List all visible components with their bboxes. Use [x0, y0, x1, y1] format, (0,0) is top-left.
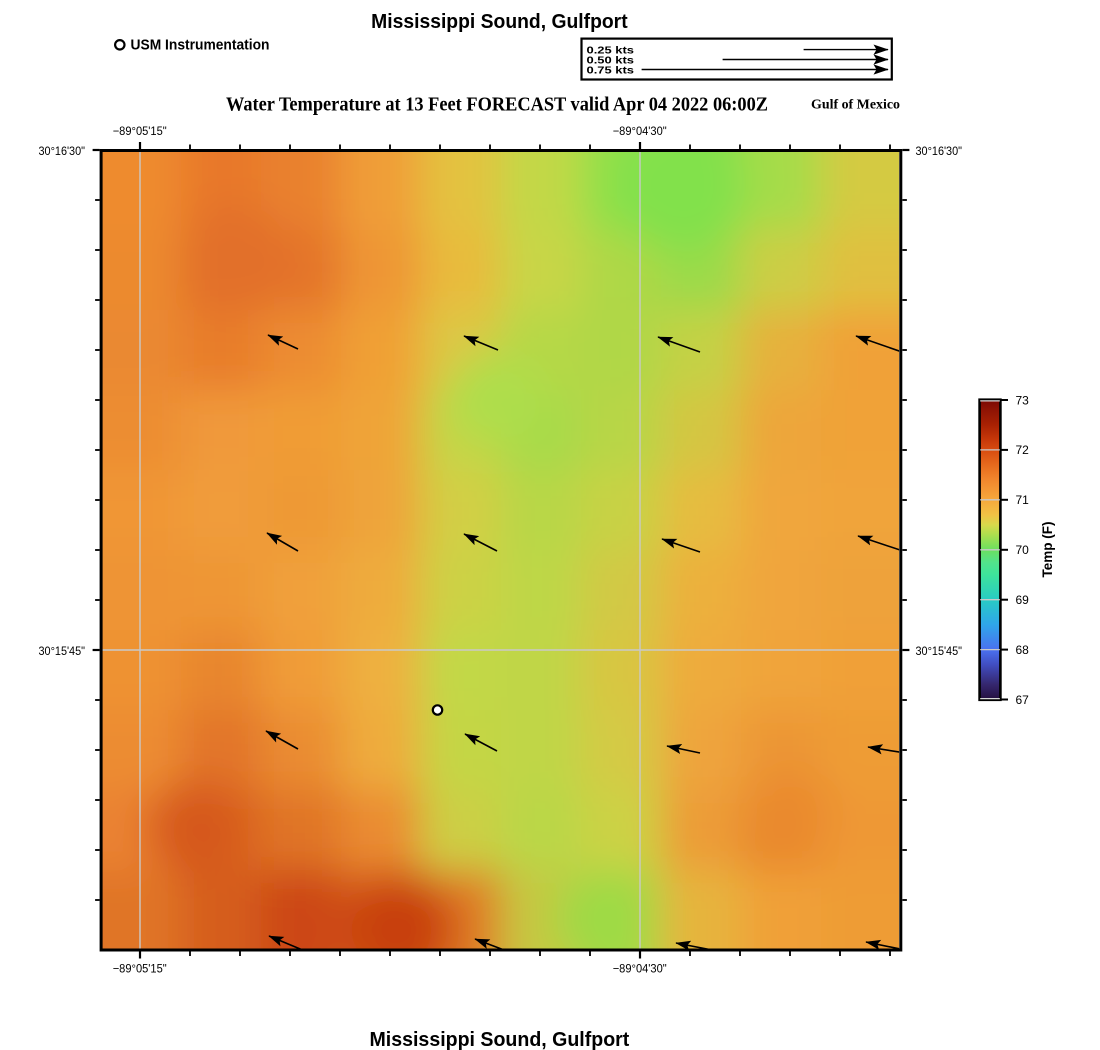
svg-text:30°15'45": 30°15'45": [916, 644, 963, 658]
svg-text:−89°04'30": −89°04'30": [613, 961, 667, 975]
svg-text:Gulf of Mexico: Gulf of Mexico: [811, 97, 900, 112]
svg-text:0.75 kts: 0.75 kts: [587, 64, 635, 76]
svg-text:71: 71: [1016, 493, 1030, 507]
svg-text:68: 68: [1016, 643, 1030, 657]
svg-text:70: 70: [1016, 543, 1030, 557]
svg-text:Mississippi Sound, Gulfport: Mississippi Sound, Gulfport: [370, 1028, 630, 1050]
svg-text:73: 73: [1016, 393, 1030, 407]
svg-text:30°16'30": 30°16'30": [916, 144, 963, 158]
svg-text:30°16'30": 30°16'30": [39, 144, 86, 158]
svg-text:USM Instrumentation: USM Instrumentation: [131, 38, 270, 54]
svg-text:72: 72: [1016, 443, 1030, 457]
svg-text:Temp (F): Temp (F): [1040, 522, 1055, 578]
svg-text:−89°04'30": −89°04'30": [613, 124, 667, 138]
svg-text:−89°05'15": −89°05'15": [113, 124, 167, 138]
svg-text:67: 67: [1016, 693, 1030, 707]
svg-text:69: 69: [1016, 593, 1030, 607]
svg-text:−89°05'15": −89°05'15": [113, 961, 167, 975]
svg-text:Water Temperature at 13 Feet F: Water Temperature at 13 Feet FORECAST va…: [226, 93, 768, 115]
svg-text:30°15'45": 30°15'45": [39, 644, 86, 658]
svg-text:Mississippi Sound, Gulfport: Mississippi Sound, Gulfport: [371, 10, 628, 33]
